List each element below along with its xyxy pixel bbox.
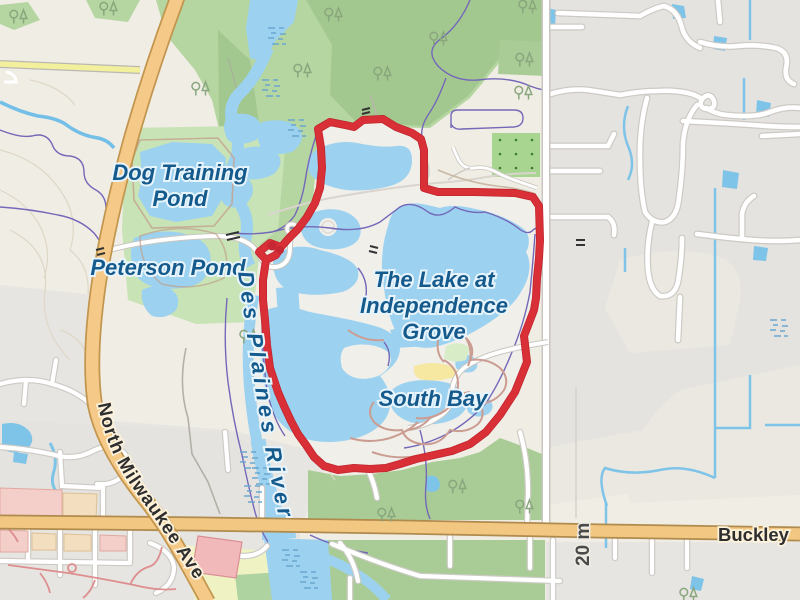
svg-text:Dog Training: Dog Training bbox=[112, 160, 248, 185]
svg-text:Grove: Grove bbox=[402, 319, 466, 344]
svg-text:Independence: Independence bbox=[360, 293, 508, 318]
svg-text:South Bay: South Bay bbox=[379, 386, 490, 411]
svg-text:Buckley: Buckley bbox=[718, 524, 790, 545]
svg-text:20 m: 20 m bbox=[573, 523, 594, 566]
svg-text:Pond: Pond bbox=[153, 186, 209, 211]
svg-text:Peterson Pond: Peterson Pond bbox=[90, 255, 246, 280]
svg-text:The Lake at: The Lake at bbox=[373, 267, 496, 292]
